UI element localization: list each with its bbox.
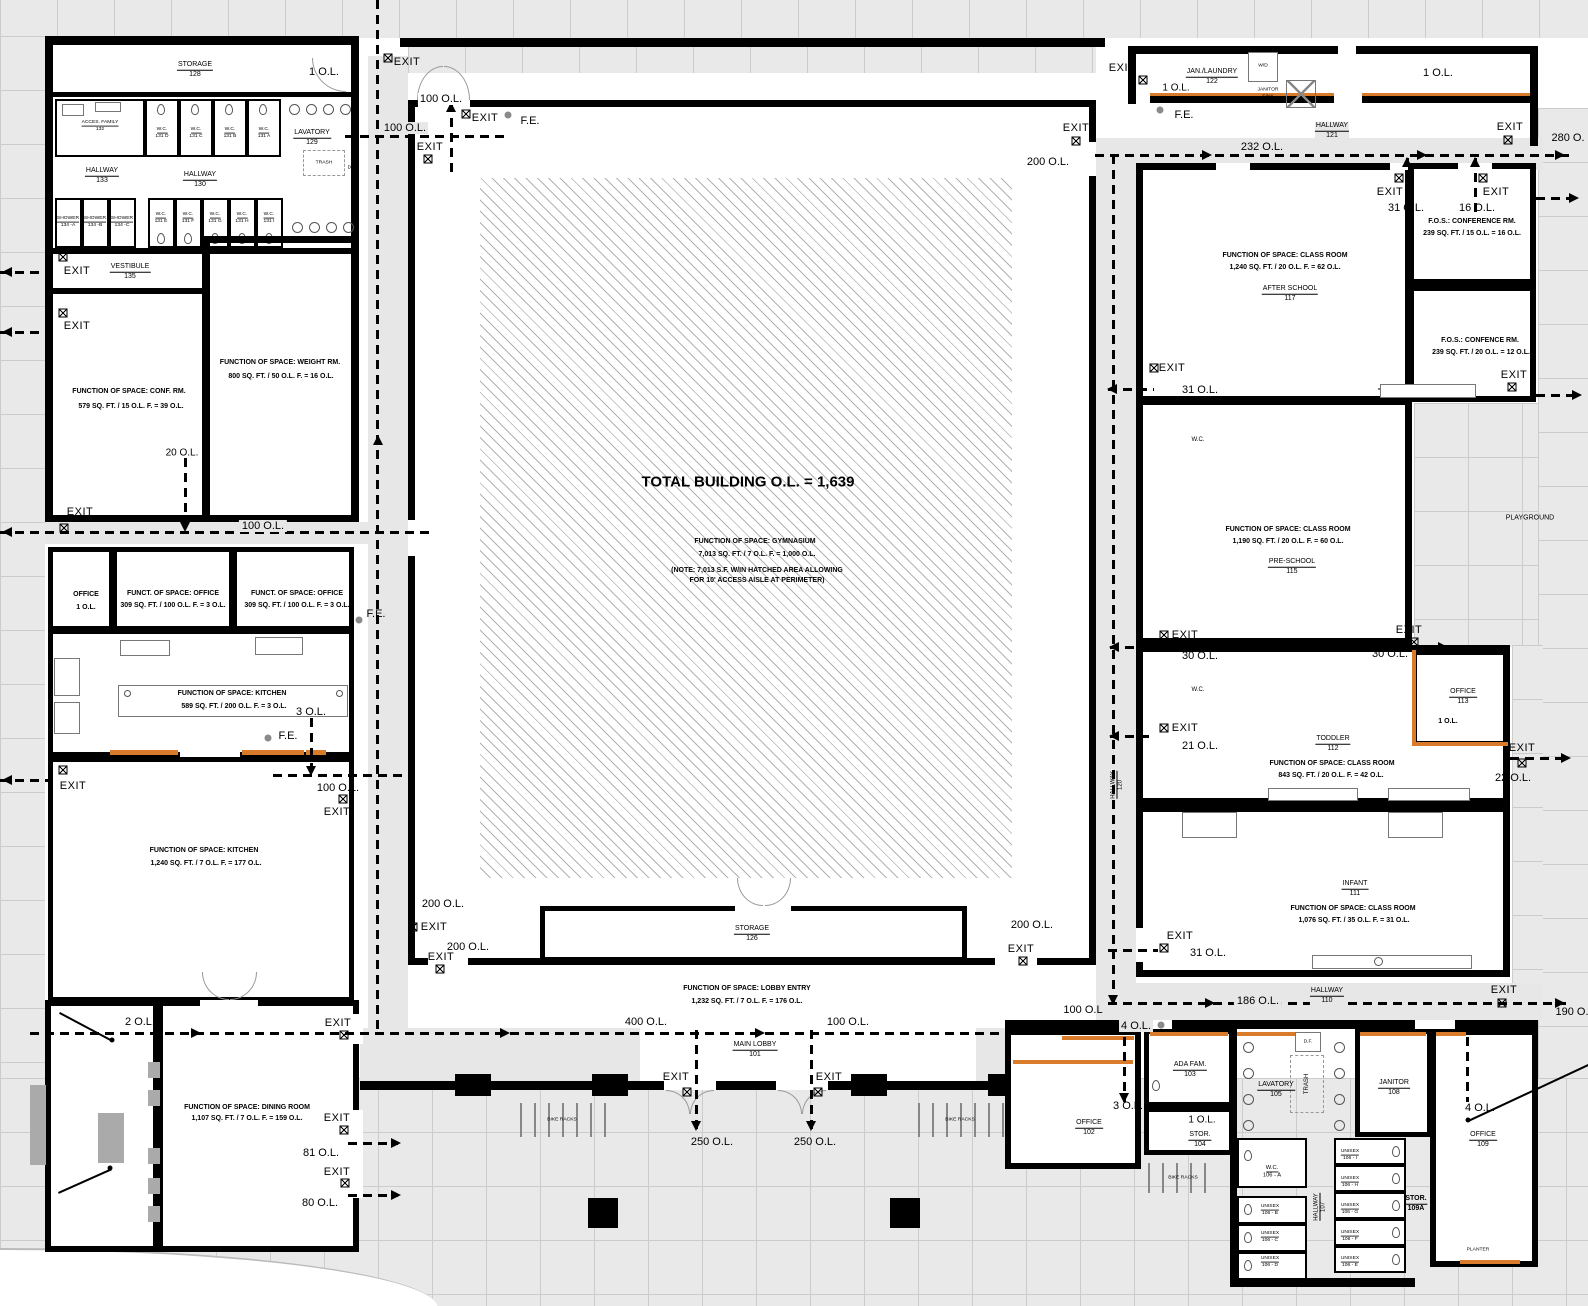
sink-icon [1243, 1120, 1254, 1131]
ol-label: 2 O.L. [125, 1016, 155, 1028]
egress-arrow [1470, 157, 1480, 167]
wc-label: W.C. [1192, 437, 1205, 443]
sink-icon [1334, 1094, 1345, 1105]
exit-symbol-icon [409, 923, 418, 932]
wc-label: W.C.131 A [258, 127, 271, 139]
room-office-small [48, 547, 114, 631]
exit-label: EXIT [472, 112, 498, 124]
wall [202, 236, 210, 522]
kitchen-small-fos: FUNCTION OF SPACE: KITCHEN [178, 690, 287, 698]
egress-arrow [2, 267, 12, 277]
sink-icon [292, 222, 303, 233]
fixture [62, 104, 84, 116]
wall [351, 36, 359, 240]
room-label-storage-126: STORAGE126 [734, 925, 770, 944]
janitor-sink-label-2: SINK [1262, 94, 1273, 100]
room-fos-conf: FUNCTION OF SPACE: CONF. RM. [72, 388, 185, 396]
exit-label: EXIT [394, 56, 420, 68]
sink-icon [323, 104, 334, 115]
exit-symbol-icon [462, 110, 471, 119]
exit-symbol-icon [1410, 638, 1419, 647]
wc-label: W.C.131 E [155, 212, 168, 224]
exit-symbol-icon [60, 524, 69, 533]
sink-icon [1243, 1068, 1254, 1079]
total-building-ol: TOTAL BUILDING O.L. = 1,639 [642, 474, 855, 491]
floor-plan: TOTAL BUILDING O.L. = 1,639 FUNCTION OF … [0, 0, 1588, 1306]
fe-label: F.E. [367, 608, 386, 620]
egress-arrow [691, 1121, 701, 1131]
casework [1013, 1060, 1133, 1064]
ol-label: 16 O.L. [1459, 202, 1495, 214]
rm111-calc: 1,076 SQ. FT. / 35 O.L. F. = 31 O.L. [1298, 917, 1409, 925]
egress-path [345, 135, 505, 138]
egress-arrow [1107, 384, 1117, 394]
room-classroom-115 [1136, 398, 1412, 645]
exit-label: EXIT [428, 951, 454, 963]
door-gap [1216, 163, 1250, 170]
corridor-hall120 [1096, 170, 1136, 1020]
door-gap [995, 958, 1037, 965]
door-gap [408, 520, 415, 556]
casework [1150, 1032, 1228, 1036]
room-label-office-109: OFFICE109 [1469, 1131, 1497, 1150]
dining-furniture [148, 1090, 160, 1106]
exit-symbol-icon [59, 253, 68, 262]
room-dining [157, 1000, 359, 1252]
sink-icon [1243, 1094, 1254, 1105]
wc-label: W.C. [1192, 687, 1205, 693]
casework [1237, 1032, 1297, 1036]
conference-a-calc: 239 SQ. FT. / 15 O.L. = 16 O.L. [1423, 230, 1521, 238]
door-gap [353, 1014, 363, 1044]
exit-label: EXIT [663, 1071, 689, 1083]
fe-label: F.E. [521, 115, 540, 127]
sink-icon [336, 690, 343, 697]
exit-symbol-icon [1160, 631, 1169, 640]
conference-b-calc: 239 SQ. FT. / 20 O.L. = 12 O.L. [1432, 349, 1530, 357]
ol-label: 100 O.L [1063, 1004, 1102, 1016]
door-gap [1136, 928, 1143, 962]
gym-fos: FUNCTION OF SPACE: GYMNASIUM [694, 538, 815, 546]
rm115-calc: 1,190 SQ. FT. / 20 O.L. F. = 60 O.L. [1232, 538, 1343, 546]
exit-symbol-icon [1508, 383, 1517, 392]
sink-icon [289, 104, 300, 115]
exit-label: EXIT [1172, 629, 1198, 641]
egress-arrow [391, 1190, 401, 1200]
planter-label: PLANTER [1467, 1247, 1490, 1253]
casework [1360, 1032, 1426, 1036]
ol-label: 100 O.L. [317, 782, 359, 794]
ol-label: 21 O.L. [1182, 740, 1218, 752]
stall-label-106d: UNISEX106 - D [1261, 1256, 1279, 1268]
dining-furniture [148, 1148, 160, 1164]
egress-arrow [1462, 1021, 1472, 1031]
janitor-sink-box [1286, 80, 1316, 108]
wall [45, 248, 285, 254]
egress-arrow [391, 1138, 401, 1148]
ol-label: 100 O.L. [382, 122, 428, 134]
wall [1128, 46, 1136, 104]
exit-label: EXIT [1509, 742, 1535, 754]
egress-arrow [306, 766, 316, 776]
exit-symbol-icon [436, 965, 445, 974]
shower-label: SHOWER134 -B [84, 216, 106, 228]
ol-label: 190 O. [1555, 1006, 1588, 1018]
exit-label: EXIT [1396, 624, 1422, 636]
room-kitchen-large [48, 757, 354, 1002]
ol-label: 100 O.L. [824, 1016, 872, 1028]
exit-symbol-icon [59, 309, 68, 318]
egress-arrow [1202, 150, 1212, 160]
exit-label: EXIT [1483, 186, 1509, 198]
toilet-icon [259, 104, 267, 115]
dining-furniture [148, 1206, 160, 1222]
wall [1230, 1029, 1237, 1285]
toilet-icon [1392, 1173, 1400, 1184]
wall [204, 236, 356, 243]
kitchen-small-calc: 589 SQ. FT. / 200 O.L. F. = 3 O.L. [181, 703, 286, 711]
trash-label: TRASH [316, 160, 333, 166]
dining-furniture [148, 1178, 160, 1194]
egress-arrow [1109, 642, 1119, 652]
pavement-left [0, 36, 45, 1082]
toilet-icon [1392, 1146, 1400, 1157]
fe-label: F.E. [1173, 1020, 1192, 1032]
egress-arrow [191, 1028, 201, 1038]
wd-label: W/D [1258, 63, 1268, 69]
ol-label: 186 O.L. [1234, 995, 1282, 1007]
office-small-label: OFFICE [73, 591, 99, 599]
ol-label: 31 O.L. [1182, 384, 1218, 396]
egress-path [695, 1030, 698, 1130]
sink-icon [309, 222, 320, 233]
egress-arrow [1438, 642, 1448, 652]
counter [1268, 788, 1358, 801]
ol-label: 1 O.L. [1423, 67, 1453, 79]
office-small-ol: 1 O.L. [76, 604, 95, 612]
exit-label: EXIT [60, 780, 86, 792]
kitchen-large-fos: FUNCTION OF SPACE: KITCHEN [150, 847, 259, 855]
room-label-hallway-120: HALLWAY120 [1111, 771, 1124, 799]
rm111-fos: FUNCTION OF SPACE: CLASS ROOM [1290, 905, 1415, 913]
room-label-vestibule-135: VESTIBULE135 [110, 263, 151, 282]
wc-stall-106a [1237, 1138, 1307, 1188]
room-label-pre-school: PRE-SCHOOL115 [1268, 558, 1316, 577]
bike-racks-label: BIKE RACKS [547, 1117, 577, 1123]
counter [120, 640, 170, 656]
wall [1128, 46, 1338, 54]
plaza-column [890, 1198, 920, 1228]
lobby-entry-fos: FUNCTION OF SPACE: LOBBY ENTRY [683, 985, 810, 993]
sink-icon [1334, 1042, 1345, 1053]
egress-arrow [806, 1121, 816, 1131]
exit-label: EXIT [324, 1166, 350, 1178]
exit-symbol-icon [1395, 174, 1404, 183]
toilet-icon [157, 104, 165, 115]
ol-label: 31 O.L. [1190, 947, 1226, 959]
ol-label: 4 O.L. [1465, 1102, 1495, 1114]
leader-dot [110, 1038, 115, 1043]
wc-label: W.C.131 F [182, 212, 195, 224]
trash-label-vert: TRASH [1304, 1074, 1310, 1094]
egress-arrow [1569, 193, 1579, 203]
office-a-fos: FUNCT. OF SPACE: OFFICE [127, 590, 219, 598]
egress-path [273, 774, 408, 777]
egress-path [450, 103, 453, 173]
fire-extinguisher-icon [505, 112, 512, 119]
exit-label: EXIT [324, 1112, 350, 1124]
exit-symbol-icon [384, 54, 393, 63]
room-label-hallway-110: HALLWAY110 [1310, 987, 1344, 1006]
ol-label: 200 O.L. [1011, 919, 1053, 931]
wall [1530, 46, 1538, 146]
stall-label-106a: W.C.106 - A [1263, 1165, 1281, 1179]
exit-symbol-icon [1160, 944, 1169, 953]
room-label-acces-132: ACCES. FAMILY132 [82, 120, 119, 132]
main-lobby-floor [640, 1028, 976, 1083]
egress-path [1123, 1022, 1126, 1102]
door-gap [353, 1110, 363, 1198]
room-calc-conf: 579 SQ. FT. / 15 O.L. F. = 39 O.L. [78, 403, 183, 411]
egress-path [1095, 154, 1573, 157]
stall-label-106c: UNISEX106 - C [1261, 1231, 1279, 1243]
room-label-janitor-108: JANITOR108 [1378, 1079, 1410, 1098]
toilet-icon [1244, 1150, 1252, 1161]
rm117-calc: 1,240 SQ. FT. / 20 O.L. F. = 62 O.L. [1229, 264, 1340, 272]
exit-label: EXIT [1497, 121, 1523, 133]
sink-icon [306, 104, 317, 115]
egress-arrow [1561, 753, 1571, 763]
wc-label: W.C.131 C [189, 127, 202, 139]
exit-label: EXIT [64, 265, 90, 277]
pavement-playground [1414, 403, 1538, 647]
toilet-icon [225, 104, 233, 115]
egress-path [1108, 949, 1158, 952]
egress-path [376, 0, 379, 1032]
room-label-hallway-107: HALLWAY107 [1314, 1193, 1327, 1221]
sink-icon [326, 222, 337, 233]
janitor-sink-label-1: JANITOR [1258, 87, 1279, 93]
ol-label: 100 O.L. [418, 93, 464, 105]
room-label-lavatory-129: LAVATORY129 [293, 129, 331, 148]
room-label-infant: INFANT111 [1342, 880, 1369, 899]
conference-a-fos: F.O.S.: CONFERENCE RM. [1428, 218, 1516, 226]
dining-calc: 1,107 SQ. FT. / 7 O.L. F. = 159 O.L. [191, 1115, 302, 1123]
pilaster [592, 1074, 628, 1096]
counter [1388, 788, 1470, 801]
appliance [54, 658, 80, 696]
toilet-icon [1392, 1227, 1400, 1238]
office-b-calc: 309 SQ. FT. / 100 O.L. F. = 3 O.L. [244, 602, 349, 610]
wall [1230, 1278, 1415, 1287]
ol-label: 80 O.L. [302, 1197, 338, 1209]
door-gap [1089, 142, 1096, 176]
room-label-hallway-130: HALLWAY130 [183, 171, 217, 190]
wc-label: W.C.131 H [235, 212, 248, 224]
appliance [54, 702, 80, 734]
exit-symbol-icon [1504, 136, 1513, 145]
room-label-hallway-133: HALLWAY133 [85, 167, 119, 186]
sink-icon [1243, 1042, 1254, 1053]
egress-path [30, 1032, 1095, 1035]
exit-symbol-icon [59, 766, 68, 775]
egress-arrow [2, 527, 12, 537]
exit-symbol-icon [424, 155, 433, 164]
casework [242, 750, 304, 755]
leader-dot [1466, 1118, 1471, 1123]
sink-icon [1334, 1068, 1345, 1079]
wc-label: W.C.131 B [224, 127, 237, 139]
rm112-calc: 843 SQ. FT. / 20 O.L. F. = 42 O.L. [1278, 772, 1383, 780]
wc-label: W.C.131 G [208, 212, 221, 224]
stall-label-106e: UNISEX106 - E [1341, 1256, 1359, 1268]
kitchen-large-calc: 1,240 SQ. FT. / 7 O.L. F. = 177 O.L. [150, 860, 261, 868]
shower-label: SHOWER134 -A [57, 216, 79, 228]
exit-symbol-icon [1518, 759, 1527, 768]
rm115-fos: FUNCTION OF SPACE: CLASS ROOM [1225, 526, 1350, 534]
wall [45, 36, 359, 45]
casework [1412, 650, 1416, 746]
fire-extinguisher-icon [265, 735, 272, 742]
casework [306, 750, 326, 755]
exit-symbol-icon [1072, 137, 1081, 146]
egress-arrow [1402, 157, 1412, 167]
toilet-icon [1244, 1260, 1252, 1271]
room-label-lavatory-105: LAVATORY105 [1257, 1081, 1295, 1100]
wall [1005, 1020, 1538, 1029]
ol-label: 22 O.L. [1495, 772, 1531, 784]
dining-fos: FUNCTION OF SPACE: DINING ROOM [184, 1104, 310, 1112]
crib [1182, 812, 1237, 838]
rm117-fos: FUNCTION OF SPACE: CLASS ROOM [1222, 252, 1347, 260]
egress-path [1112, 155, 1115, 1005]
ol-label: 30 O.L. [1182, 650, 1218, 662]
exit-label: EXIT [1377, 186, 1403, 198]
room-label-stor-109a: STOR.109A [1404, 1195, 1427, 1214]
ol-label: 280 O. [1551, 132, 1584, 144]
casework [1412, 742, 1508, 746]
counter [255, 637, 303, 655]
room-label-main-lobby: MAIN LOBBY101 [733, 1041, 778, 1060]
pilaster [851, 1074, 887, 1096]
gym-hatch-area [480, 178, 1012, 878]
toilet-icon [1244, 1204, 1252, 1215]
toilet-icon [191, 104, 199, 115]
exit-symbol-icon [1139, 76, 1148, 85]
office-b-fos: FUNCT. OF SPACE: OFFICE [251, 590, 343, 598]
fire-extinguisher-icon [356, 617, 363, 624]
egress-arrow [2, 775, 12, 785]
ol-label: 1 O.L. [1162, 83, 1189, 94]
exit-symbol-icon [340, 1126, 349, 1135]
room-fos-weight: FUNCTION OF SPACE: WEIGHT RM. [220, 359, 340, 367]
exit-symbol-icon [341, 1179, 350, 1188]
ol-label: 81 O.L. [303, 1147, 339, 1159]
room-label-storage-128: STORAGE128 [177, 61, 213, 80]
toilet-icon [184, 233, 192, 244]
ol-label: 232 O.L. [1238, 141, 1286, 153]
wall [1356, 46, 1538, 54]
gym-note1: (NOTE: 7,013 S.F. W/IN HATCHED AREA ALLO… [671, 567, 843, 575]
ol-label: 20 O.L. [166, 448, 199, 459]
room-label-hallway-121: HALLWAY121 [1315, 122, 1349, 141]
stall-label-106g: UNISEX106 - G [1341, 1203, 1359, 1215]
casework [1362, 93, 1532, 96]
sink-icon [343, 222, 354, 233]
exit-label: EXIT [67, 506, 93, 518]
egress-arrow [1205, 998, 1215, 1008]
stall-label-106b: UNISEX106 - B [1261, 1204, 1279, 1216]
room-label-jan-laundry: JAN./LAUNDRY122 [1186, 68, 1238, 87]
casework [110, 750, 178, 755]
ol-label: 4 O.L. [1119, 1020, 1153, 1032]
room-calc-weight: 800 SQ. FT. / 50 O.L. F. = 16 O.L. [228, 373, 333, 381]
toilet-icon [157, 233, 165, 244]
toilet-icon [1392, 1200, 1400, 1211]
stall-label-106f: UNISEX106 - F [1341, 1230, 1359, 1242]
egress-arrow [500, 1028, 510, 1038]
exit-symbol-icon [339, 795, 348, 804]
exit-label: EXIT [1159, 362, 1185, 374]
exit-label: EXIT [64, 320, 90, 332]
gym-note2: FOR 10' ACCESS AISLE AT PERIMETER) [690, 577, 825, 585]
exit-symbol-icon [683, 1088, 692, 1097]
egress-path [184, 458, 187, 530]
egress-arrow [1555, 150, 1565, 160]
room-label-toddler: TODDLER112 [1315, 735, 1350, 754]
ol-label: 30 O.L. [1372, 648, 1408, 660]
plaza-column [588, 1198, 618, 1228]
dining-furniture [98, 1113, 124, 1163]
casework [1436, 1032, 1466, 1036]
leader-dot [108, 1166, 113, 1171]
ol-label: 3 O.L. [1113, 1100, 1143, 1112]
exit-label: EXIT [421, 921, 447, 933]
exit-label: EXIT [325, 1017, 351, 1029]
exit-label: EXIT [1063, 122, 1089, 134]
egress-arrow [1417, 150, 1427, 160]
ol-label: 3 O.L. [296, 706, 326, 718]
egress-arrow [2, 327, 12, 337]
exit-symbol-icon [1498, 999, 1507, 1008]
fixture [95, 102, 121, 112]
door-gap [200, 1000, 258, 1006]
ol-label: 31 O.L. [1388, 202, 1424, 214]
egress-arrow [1109, 731, 1119, 741]
bike-racks-label: BIKE RACKS [1168, 1175, 1198, 1181]
counter [1380, 384, 1476, 398]
casework [1460, 1260, 1520, 1264]
exit-symbol-icon [340, 1031, 349, 1040]
sink-icon [1374, 957, 1383, 966]
pavement-top [0, 0, 1588, 38]
equipment [30, 1085, 46, 1165]
df-label: D.F. [348, 165, 357, 171]
dining-furniture [148, 1062, 160, 1078]
ol-label: 200 O.L. [1027, 156, 1069, 168]
lobby-entry-calc: 1,232 SQ. FT. / 7 O.L. F. = 176 O.L. [691, 998, 802, 1006]
counter [1312, 955, 1472, 969]
toilet-icon [1392, 1254, 1400, 1265]
exit-label: EXIT [324, 806, 350, 818]
egress-arrow [1572, 390, 1582, 400]
gym-calc: 7,013 SQ. FT. / 7 O.L. F. = 1,000 O.L. [699, 551, 816, 559]
shower-label: SHOWER134 -C [111, 216, 133, 228]
bike-racks-label: BIKE RACKS [945, 1117, 975, 1123]
exit-label: EXIT [816, 1071, 842, 1083]
toilet-icon [1244, 1232, 1252, 1243]
egress-arrow [1108, 995, 1118, 1005]
